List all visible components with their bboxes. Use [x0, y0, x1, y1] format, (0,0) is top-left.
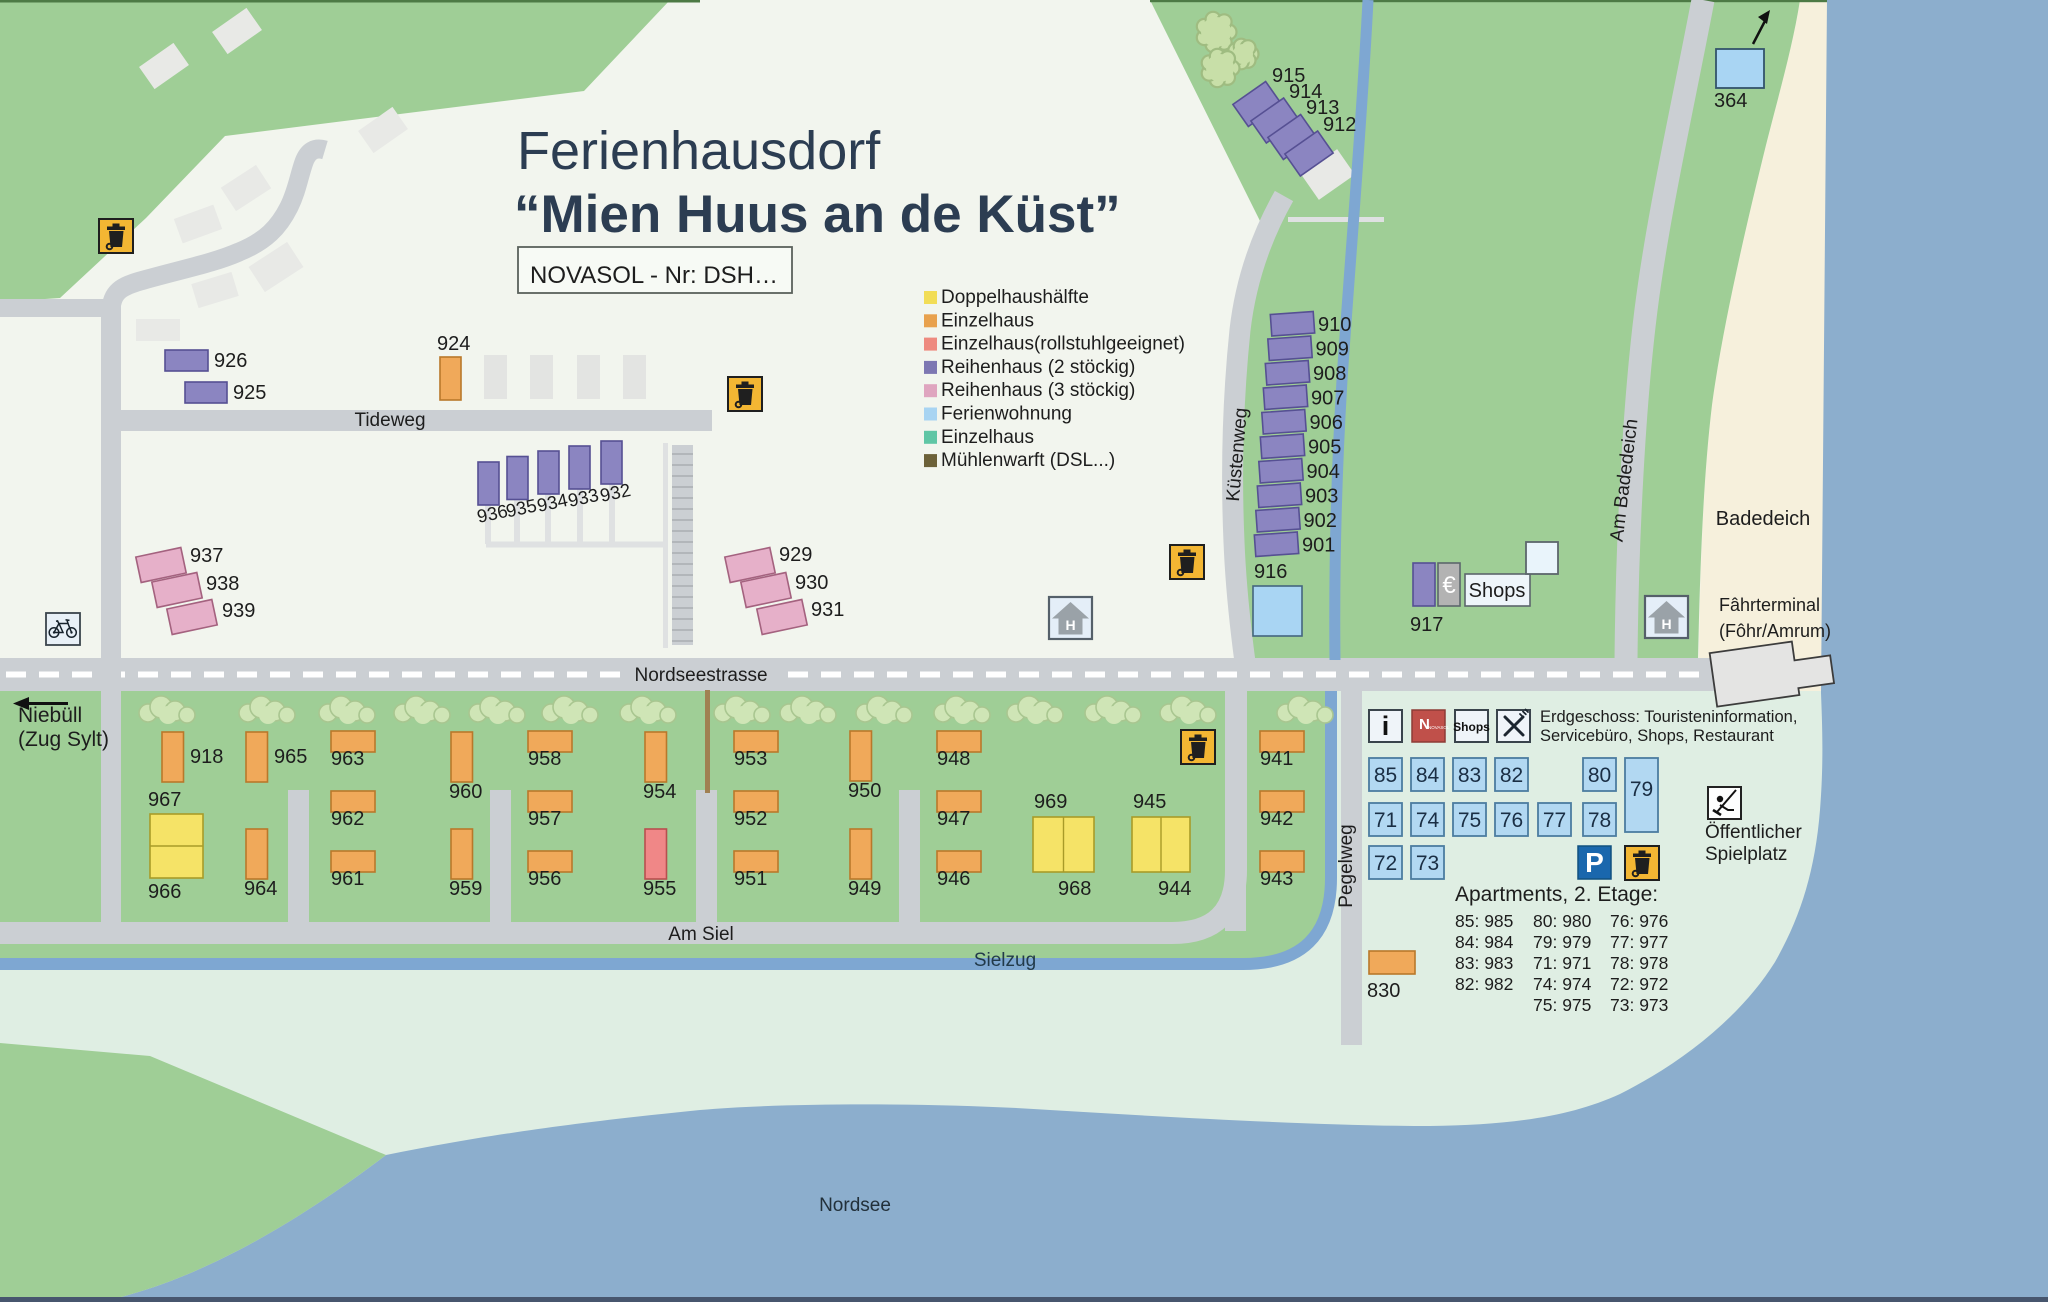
- svg-text:€: €: [1442, 572, 1456, 599]
- svg-text:929: 929: [779, 544, 812, 566]
- svg-text:959: 959: [449, 878, 482, 900]
- svg-text:965: 965: [274, 746, 307, 768]
- svg-text:949: 949: [848, 878, 881, 900]
- svg-text:76: 976: 76: 976: [1610, 911, 1668, 931]
- svg-text:Ferienwohnung: Ferienwohnung: [941, 404, 1072, 425]
- svg-text:960: 960: [449, 781, 482, 803]
- svg-text:82: 82: [1500, 764, 1523, 787]
- svg-text:79: 979: 79: 979: [1533, 932, 1591, 952]
- svg-text:Reihenhaus (3 stöckig): Reihenhaus (3 stöckig): [941, 380, 1135, 401]
- svg-text:Servicebüro, Shops, Restaurant: Servicebüro, Shops, Restaurant: [1540, 727, 1774, 745]
- svg-text:952: 952: [734, 808, 767, 830]
- svg-text:Niebüll: Niebüll: [18, 704, 82, 727]
- svg-text:904: 904: [1307, 461, 1340, 483]
- svg-text:Nordseestrasse: Nordseestrasse: [634, 665, 767, 686]
- svg-text:NOVASOL: NOVASOL: [1428, 725, 1450, 730]
- svg-text:941: 941: [1260, 748, 1293, 770]
- svg-text:Badedeich: Badedeich: [1716, 508, 1811, 530]
- svg-text:NOVASOL - Nr: DSH…: NOVASOL - Nr: DSH…: [530, 262, 778, 289]
- svg-text:80: 980: 80: 980: [1533, 911, 1592, 931]
- svg-text:947: 947: [937, 808, 970, 830]
- svg-text:903: 903: [1305, 486, 1338, 508]
- svg-text:905: 905: [1308, 437, 1341, 459]
- svg-text:916: 916: [1254, 561, 1287, 583]
- svg-text:Erdgeschoss: Touristeninformat: Erdgeschoss: Touristeninformation,: [1540, 708, 1797, 726]
- svg-text:74: 974: 74: 974: [1533, 974, 1592, 994]
- svg-text:Apartments, 2. Etage:: Apartments, 2. Etage:: [1455, 883, 1658, 906]
- svg-text:907: 907: [1311, 388, 1344, 410]
- svg-text:Shops: Shops: [1453, 720, 1490, 734]
- svg-text:84: 984: 84: 984: [1455, 932, 1514, 952]
- svg-text:945: 945: [1133, 791, 1166, 813]
- svg-text:943: 943: [1260, 868, 1293, 890]
- svg-text:930: 930: [795, 572, 828, 594]
- svg-text:961: 961: [331, 868, 364, 890]
- svg-text:950: 950: [848, 780, 881, 802]
- svg-text:Einzelhaus: Einzelhaus: [941, 427, 1034, 448]
- svg-text:939: 939: [222, 600, 255, 622]
- svg-text:71: 971: 71: 971: [1533, 953, 1591, 973]
- svg-text:83: 83: [1458, 764, 1481, 787]
- svg-text:77: 977: 77: 977: [1610, 932, 1668, 952]
- svg-text:906: 906: [1310, 412, 1343, 434]
- svg-text:(Zug Sylt): (Zug Sylt): [18, 728, 109, 751]
- svg-text:364: 364: [1714, 90, 1747, 112]
- svg-text:83: 983: 83: 983: [1455, 953, 1513, 973]
- svg-text:931: 931: [811, 599, 844, 621]
- svg-text:78: 78: [1588, 809, 1611, 832]
- svg-text:967: 967: [148, 789, 181, 811]
- svg-text:Spielplatz: Spielplatz: [1705, 844, 1787, 865]
- svg-text:(Fôhr/Amrum): (Fôhr/Amrum): [1719, 621, 1831, 641]
- svg-text:“Mien Huus an de Küst”: “Mien Huus an de Küst”: [514, 185, 1121, 244]
- svg-text:937: 937: [190, 545, 223, 567]
- svg-text:Öffentlicher: Öffentlicher: [1705, 822, 1802, 843]
- svg-text:75: 975: 75: 975: [1533, 995, 1591, 1015]
- svg-text:955: 955: [643, 878, 676, 900]
- svg-text:Ferienhausdorf: Ferienhausdorf: [517, 121, 881, 181]
- svg-text:Pegelweg: Pegelweg: [1336, 824, 1357, 907]
- svg-text:968: 968: [1058, 878, 1091, 900]
- svg-text:78: 978: 78: 978: [1610, 953, 1668, 973]
- svg-text:910: 910: [1318, 314, 1351, 336]
- svg-text:80: 80: [1588, 764, 1611, 787]
- svg-text:85: 985: 85: 985: [1455, 911, 1513, 931]
- svg-text:71: 71: [1374, 809, 1397, 832]
- svg-text:909: 909: [1316, 339, 1349, 361]
- svg-text:82: 982: 82: 982: [1455, 974, 1513, 994]
- svg-text:Shops: Shops: [1469, 580, 1526, 602]
- svg-text:924: 924: [437, 333, 470, 355]
- svg-text:958: 958: [528, 748, 561, 770]
- svg-text:966: 966: [148, 881, 181, 903]
- svg-text:902: 902: [1304, 510, 1337, 532]
- svg-text:75: 75: [1458, 809, 1481, 832]
- svg-text:953: 953: [734, 748, 767, 770]
- svg-text:830: 830: [1367, 980, 1400, 1002]
- svg-text:912: 912: [1323, 114, 1356, 136]
- svg-text:918: 918: [190, 746, 223, 768]
- svg-text:79: 79: [1630, 778, 1653, 801]
- svg-text:957: 957: [528, 808, 561, 830]
- svg-text:917: 917: [1410, 614, 1443, 636]
- svg-text:77: 77: [1543, 809, 1566, 832]
- svg-text:84: 84: [1416, 764, 1440, 787]
- svg-text:954: 954: [643, 781, 676, 803]
- svg-text:964: 964: [244, 878, 277, 900]
- svg-text:944: 944: [1158, 878, 1191, 900]
- svg-text:908: 908: [1313, 363, 1346, 385]
- svg-text:73: 973: 73: 973: [1610, 995, 1668, 1015]
- svg-text:938: 938: [206, 573, 239, 595]
- svg-text:72: 972: 72: 972: [1610, 974, 1668, 994]
- svg-text:956: 956: [528, 868, 561, 890]
- svg-text:Am Siel: Am Siel: [668, 924, 733, 945]
- svg-text:74: 74: [1416, 809, 1440, 832]
- svg-text:963: 963: [331, 748, 364, 770]
- svg-text:Tideweg: Tideweg: [354, 410, 425, 431]
- svg-text:Fâhrterminal: Fâhrterminal: [1719, 595, 1820, 615]
- svg-text:Einzelhaus(rollstuhlgeeignet): Einzelhaus(rollstuhlgeeignet): [941, 334, 1185, 355]
- svg-text:951: 951: [734, 868, 767, 890]
- svg-text:72: 72: [1374, 852, 1397, 875]
- svg-text:76: 76: [1500, 809, 1523, 832]
- svg-text:Reihenhaus (2 stöckig): Reihenhaus (2 stöckig): [941, 357, 1135, 378]
- svg-text:969: 969: [1034, 791, 1067, 813]
- svg-text:Sielzug: Sielzug: [974, 950, 1036, 971]
- svg-text:942: 942: [1260, 808, 1293, 830]
- svg-text:Mühlenwarft (DSL...): Mühlenwarft (DSL...): [941, 450, 1115, 471]
- svg-text:946: 946: [937, 868, 970, 890]
- svg-text:Nordsee: Nordsee: [819, 1195, 891, 1216]
- svg-text:P: P: [1585, 847, 1604, 878]
- svg-text:85: 85: [1374, 764, 1397, 787]
- svg-text:948: 948: [937, 748, 970, 770]
- svg-text:Doppelhaushälfte: Doppelhaushälfte: [941, 287, 1089, 308]
- svg-text:962: 962: [331, 808, 364, 830]
- svg-text:Einzelhaus: Einzelhaus: [941, 310, 1034, 331]
- svg-text:926: 926: [214, 350, 247, 372]
- svg-text:i: i: [1382, 711, 1390, 741]
- svg-text:73: 73: [1416, 852, 1439, 875]
- svg-text:901: 901: [1302, 535, 1335, 557]
- svg-text:925: 925: [233, 382, 266, 404]
